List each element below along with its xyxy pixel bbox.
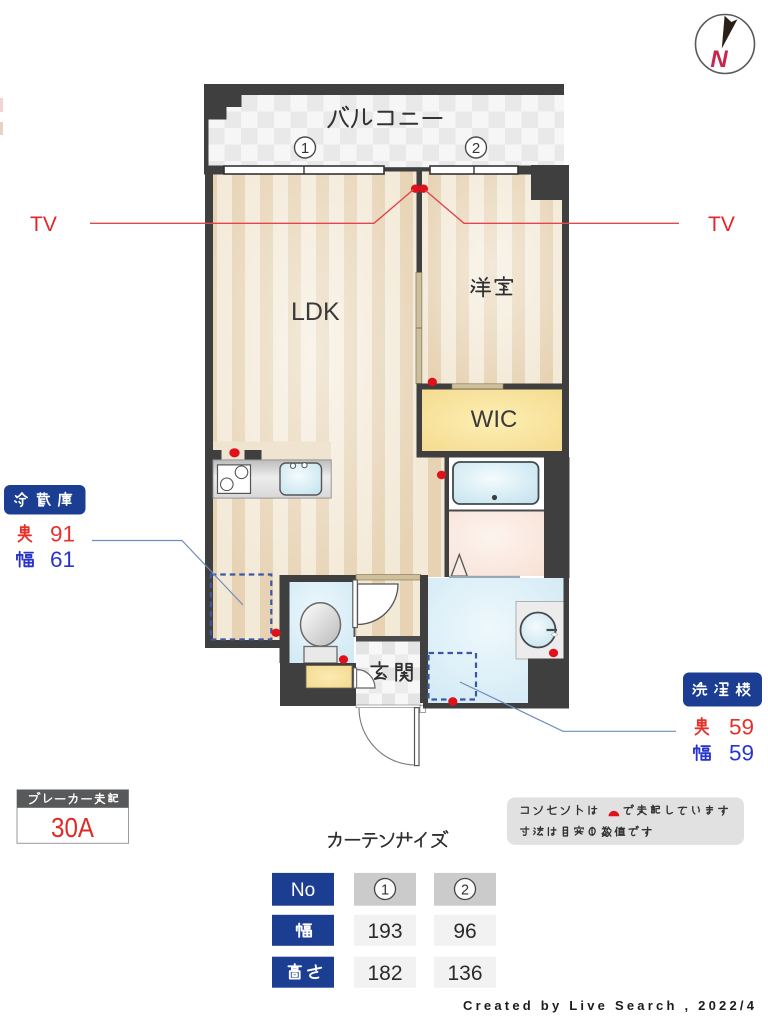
svg-text:WIC: WIC <box>471 406 518 433</box>
svg-text:2: 2 <box>461 883 469 899</box>
svg-text:1: 1 <box>381 883 389 899</box>
svg-text:96: 96 <box>453 920 476 943</box>
svg-text:LDK: LDK <box>291 298 340 326</box>
svg-text:182: 182 <box>367 962 402 985</box>
svg-text:N: N <box>710 46 728 73</box>
svg-text:1: 1 <box>301 140 309 157</box>
svg-text:136: 136 <box>447 962 482 985</box>
svg-text:61: 61 <box>50 547 75 572</box>
svg-text:2: 2 <box>472 140 480 157</box>
svg-text:No: No <box>291 880 315 901</box>
svg-text:TV: TV <box>708 213 735 236</box>
svg-text:91: 91 <box>50 522 75 547</box>
svg-text:59: 59 <box>729 741 754 766</box>
svg-text:193: 193 <box>367 920 402 943</box>
svg-text:59: 59 <box>729 715 754 740</box>
svg-text:30A: 30A <box>51 812 94 843</box>
svg-text:TV: TV <box>30 213 57 236</box>
svg-text:Created by Live Search , 2022/: Created by Live Search , 2022/4 <box>463 998 755 1013</box>
